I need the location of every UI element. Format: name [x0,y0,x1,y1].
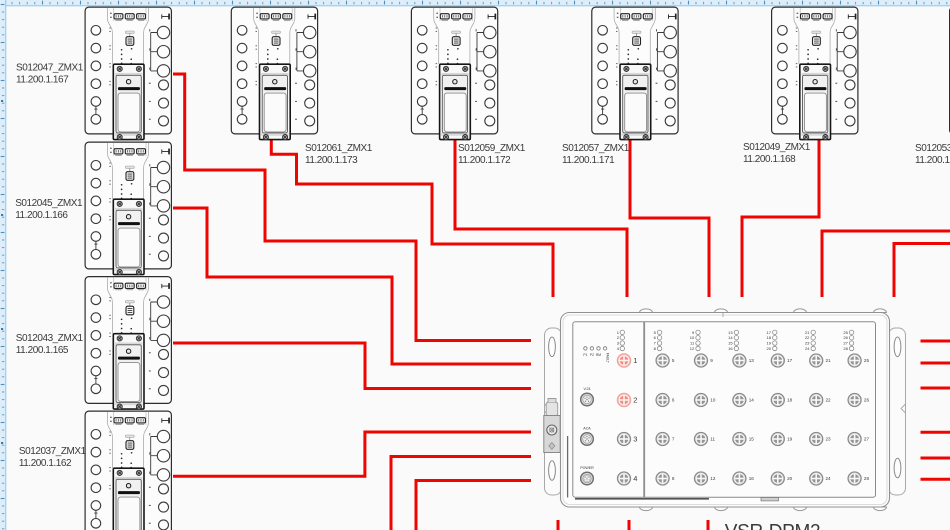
svg-text:18: 18 [767,335,772,340]
svg-text:24: 24 [805,346,810,351]
svg-text:S012045_ZMX1: S012045_ZMX1 [15,198,83,209]
svg-text:11.200.1.165: 11.200.1.165 [16,345,69,356]
svg-text:S012061_ZMX1: S012061_ZMX1 [305,143,373,154]
svg-text:19: 19 [787,437,793,442]
svg-text:15: 15 [728,341,733,346]
svg-text:FAULT: FAULT [605,353,609,363]
svg-text:S012059_ZMX1: S012059_ZMX1 [458,143,526,154]
svg-text:1: 1 [633,356,637,365]
svg-text:19: 19 [767,341,772,346]
svg-text:ACA: ACA [583,426,591,430]
svg-text:16: 16 [749,476,755,481]
svg-text:P2: P2 [590,353,594,357]
svg-text:11.200.1.167: 11.200.1.167 [16,75,69,86]
svg-text:4: 4 [633,474,637,483]
svg-text:26: 26 [843,335,848,340]
svg-text:21: 21 [805,330,810,335]
svg-text:14: 14 [749,398,755,403]
svg-text:RM: RM [596,353,601,357]
svg-text:2: 2 [633,396,637,405]
svg-text:12: 12 [710,476,716,481]
svg-text:23: 23 [826,437,832,442]
svg-text:11.200.1.172: 11.200.1.172 [458,155,511,166]
svg-text:22: 22 [826,398,832,403]
svg-text:11.200.1.173: 11.200.1.173 [305,155,358,166]
svg-text:10: 10 [710,398,716,403]
svg-text:17: 17 [787,358,793,363]
svg-text:16: 16 [728,346,733,351]
svg-text:11: 11 [710,437,715,442]
svg-text:28: 28 [843,346,848,351]
svg-text:15: 15 [749,437,755,442]
svg-text:8: 8 [672,476,675,481]
svg-text:S012037_ZMX1: S012037_ZMX1 [19,446,87,457]
svg-text:11.200.1.168: 11.200.1.168 [743,154,796,165]
svg-text:20: 20 [767,346,772,351]
svg-text:20: 20 [787,476,793,481]
svg-text:13: 13 [728,330,733,335]
svg-text:VSR-DPM2: VSR-DPM2 [725,521,820,530]
svg-text:S012049_ZMX1: S012049_ZMX1 [743,142,811,153]
svg-text:3: 3 [633,435,637,444]
svg-text:P1: P1 [583,353,587,357]
svg-text:25: 25 [864,358,870,363]
svg-text:24: 24 [826,476,832,481]
svg-text:22: 22 [805,335,810,340]
svg-text:S012043_ZMX1: S012043_ZMX1 [16,333,84,344]
svg-text:11.200.1.161: 11.200.1.161 [915,155,950,166]
svg-text:7: 7 [672,437,675,442]
svg-text:23: 23 [805,341,810,346]
svg-text:S012053_ZMX1: S012053_ZMX1 [915,143,950,154]
svg-text:17: 17 [767,330,772,335]
svg-text:12: 12 [690,346,695,351]
svg-text:10: 10 [690,335,695,340]
svg-text:28: 28 [864,476,870,481]
svg-text:V.24: V.24 [583,387,590,391]
svg-text:27: 27 [864,437,870,442]
svg-text:6: 6 [672,398,675,403]
svg-text:27: 27 [843,341,848,346]
svg-text:11.200.1.171: 11.200.1.171 [562,155,615,166]
svg-text:25: 25 [843,330,848,335]
svg-text:14: 14 [728,335,733,340]
svg-text:21: 21 [826,358,832,363]
svg-text:11.200.1.166: 11.200.1.166 [15,210,68,221]
svg-text:11.200.1.162: 11.200.1.162 [19,458,72,469]
svg-text:S012057_ZMX1: S012057_ZMX1 [562,143,630,154]
svg-text:18: 18 [787,398,793,403]
svg-text:POWER: POWER [580,466,594,470]
svg-text:13: 13 [749,358,755,363]
svg-text:S012047_ZMX1: S012047_ZMX1 [16,63,84,74]
svg-text:5: 5 [672,358,675,363]
svg-text:26: 26 [864,398,870,403]
svg-text:9: 9 [710,358,713,363]
